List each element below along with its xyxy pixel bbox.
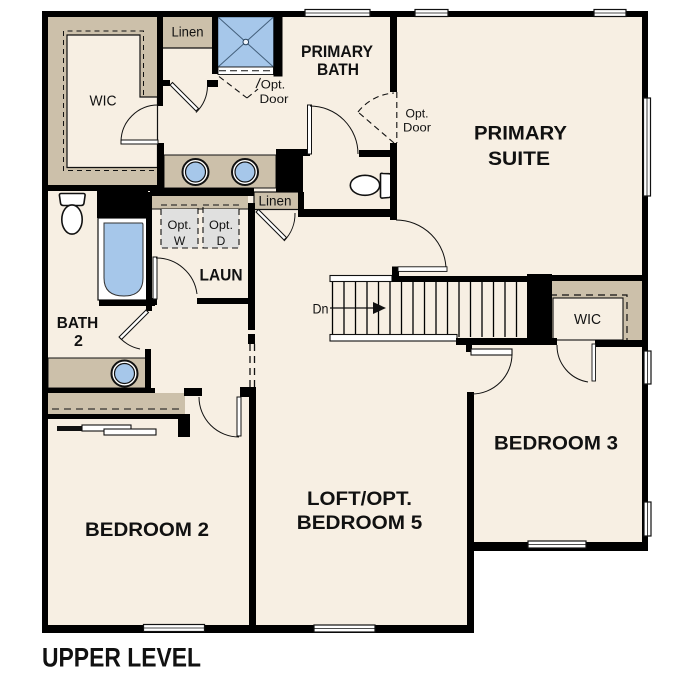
svg-text:UPPER LEVEL: UPPER LEVEL bbox=[42, 643, 201, 673]
svg-text:Opt.: Opt. bbox=[209, 218, 233, 232]
svg-text:Opt.: Opt. bbox=[406, 107, 429, 121]
svg-text:LAUN: LAUN bbox=[200, 267, 243, 285]
svg-text:D: D bbox=[217, 234, 226, 248]
svg-text:W: W bbox=[174, 234, 186, 248]
svg-text:Opt.: Opt. bbox=[168, 218, 192, 232]
svg-text:Dn: Dn bbox=[313, 301, 329, 317]
svg-text:BEDROOM 5: BEDROOM 5 bbox=[297, 512, 423, 534]
svg-text:Linen: Linen bbox=[172, 25, 204, 40]
svg-text:BATH: BATH bbox=[57, 315, 99, 332]
svg-text:BEDROOM 2: BEDROOM 2 bbox=[85, 519, 209, 541]
svg-text:PRIMARY: PRIMARY bbox=[301, 42, 374, 61]
svg-text:LOFT/OPT.: LOFT/OPT. bbox=[307, 488, 412, 510]
svg-text:BATH: BATH bbox=[317, 60, 359, 79]
svg-text:BEDROOM 3: BEDROOM 3 bbox=[494, 433, 618, 455]
svg-text:2: 2 bbox=[74, 333, 83, 350]
svg-text:SUITE: SUITE bbox=[488, 148, 550, 170]
svg-text:Linen: Linen bbox=[259, 194, 292, 209]
svg-text:Door: Door bbox=[260, 92, 289, 106]
svg-text:Opt.: Opt. bbox=[261, 78, 286, 92]
svg-text:WIC: WIC bbox=[90, 93, 117, 110]
svg-text:Door: Door bbox=[403, 121, 431, 135]
svg-text:PRIMARY: PRIMARY bbox=[474, 123, 567, 145]
svg-text:WIC: WIC bbox=[574, 312, 601, 328]
